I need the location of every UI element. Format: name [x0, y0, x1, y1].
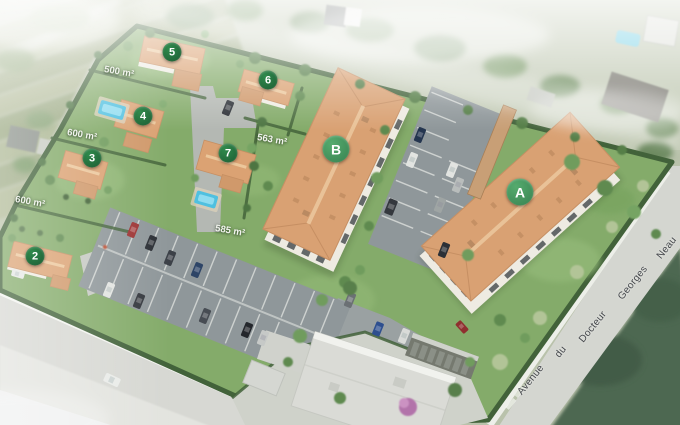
building-badge-b[interactable]: B — [323, 136, 350, 163]
lot-badge-6-label: 6 — [265, 74, 271, 86]
building-badge-a-label: A — [515, 184, 525, 200]
site-plan-scene: B A 2 3 4 5 6 7 500 m² 600 m² 600 m² 563… — [0, 0, 680, 425]
lot-badge-4[interactable]: 4 — [134, 107, 153, 126]
lot-badge-3[interactable]: 3 — [83, 149, 102, 168]
lot-badge-5[interactable]: 5 — [163, 43, 182, 62]
lot-badge-6[interactable]: 6 — [259, 71, 278, 90]
site-plan-rendering — [0, 0, 680, 425]
building-badge-b-label: B — [331, 141, 341, 157]
lot-badge-4-label: 4 — [140, 110, 146, 122]
lot-badge-7[interactable]: 7 — [219, 144, 238, 163]
lot-badge-7-label: 7 — [225, 147, 231, 159]
lot-badge-5-label: 5 — [169, 46, 175, 58]
lot-badge-2[interactable]: 2 — [26, 247, 45, 266]
lot-badge-3-label: 3 — [89, 152, 95, 164]
building-badge-a[interactable]: A — [507, 179, 534, 206]
lot-badge-2-label: 2 — [32, 250, 38, 262]
